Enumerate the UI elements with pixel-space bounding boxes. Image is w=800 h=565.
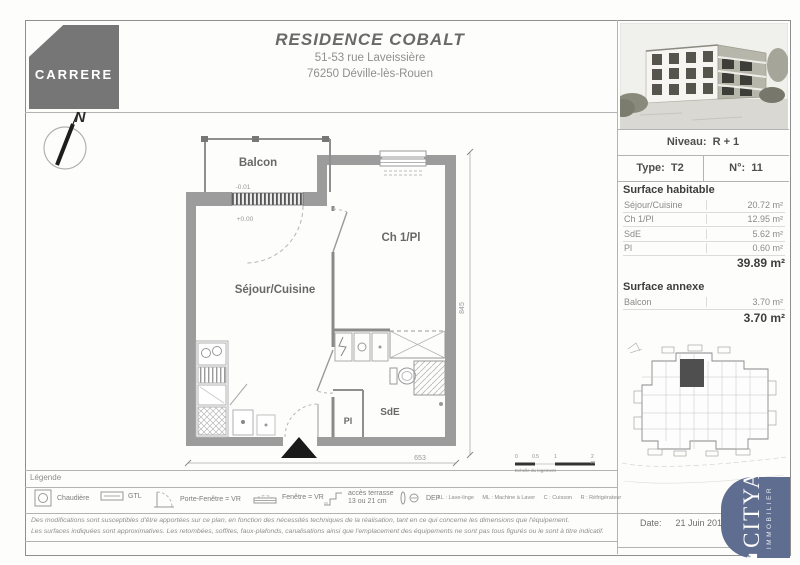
building-photo bbox=[620, 23, 788, 129]
svg-text:845: 845 bbox=[459, 302, 466, 314]
appliance-row bbox=[335, 333, 388, 361]
disclaimer-top-line bbox=[25, 513, 789, 514]
north-label: N bbox=[75, 109, 87, 126]
type-divider bbox=[617, 181, 789, 182]
level-sejour: +0.00 bbox=[237, 216, 254, 223]
surface-habitable-total: 39.89 m² bbox=[623, 256, 785, 270]
keyplan-building-outline bbox=[642, 353, 768, 449]
type-label: Type: bbox=[636, 162, 665, 174]
numero-cell: N°: 11 bbox=[703, 155, 789, 181]
table-row: Pl 0.60 m² bbox=[623, 242, 785, 257]
surface-habitable-table: Séjour/Cuisine 20.72 m² Ch 1/Pl 12.95 m²… bbox=[623, 198, 785, 256]
disclaimer-line2: Les surfaces indiquées sont approximativ… bbox=[31, 527, 619, 538]
entrance-arrow-icon bbox=[281, 437, 317, 458]
keyplan-highlighted-unit bbox=[680, 359, 704, 387]
address-line2: 76250 Déville-lès-Rouen bbox=[230, 66, 510, 82]
floor-plan-sheet: CARRERE RESIDENCE COBALT 51-53 rue Lavei… bbox=[0, 0, 800, 565]
niveau-value: R + 1 bbox=[713, 136, 740, 148]
table-row: Ch 1/Pl 12.95 m² bbox=[623, 213, 785, 228]
disclaimer-line1: Des modifications sont susceptibles d'êt… bbox=[31, 516, 619, 527]
key-plan bbox=[618, 333, 790, 501]
legend-item-dep: DEP bbox=[398, 489, 440, 507]
niveau-label: Niveau: bbox=[667, 136, 707, 148]
kitchen-block bbox=[196, 341, 275, 437]
citya-brand-name: CITYA bbox=[739, 477, 765, 548]
pl-closet-walls bbox=[333, 390, 363, 437]
legend-item-fenetre: Fenêtre = VR bbox=[252, 489, 324, 505]
level-balcon: -0.01 bbox=[236, 184, 251, 191]
fenetre-icon bbox=[252, 489, 278, 505]
citya-building-icon bbox=[745, 552, 758, 558]
table-row: SdE 5.62 m² bbox=[623, 227, 785, 242]
legend-item-gtl: GTL bbox=[100, 489, 142, 503]
room-label-balcon: Balcon bbox=[239, 157, 277, 169]
numero-value: 11 bbox=[751, 162, 763, 174]
legend-item-porte-fenetre: Porte-Fenêtre = VR bbox=[152, 489, 241, 509]
shower-icon bbox=[414, 361, 445, 406]
carrere-logo-text: CARRERE bbox=[35, 67, 113, 82]
gtl-icon bbox=[100, 489, 124, 503]
north-compass-icon: N bbox=[44, 109, 87, 169]
legend-item-chaudiere: Chaudière bbox=[33, 489, 89, 507]
table-row: Balcon 3.70 m² bbox=[623, 295, 785, 310]
room-label-sde: SdE bbox=[380, 407, 400, 418]
legend-mid-line bbox=[25, 487, 617, 488]
surface-annexe-total: 3.70 m² bbox=[623, 311, 785, 325]
date-label: Date: bbox=[640, 518, 662, 528]
toilet-icon bbox=[390, 368, 416, 384]
scale-caption: Echelle du logement bbox=[515, 468, 599, 473]
svg-text:653: 653 bbox=[414, 455, 426, 462]
surface-annexe-table: Balcon 3.70 m² bbox=[623, 295, 785, 310]
type-value: T2 bbox=[671, 162, 684, 174]
dimension-height: 845 bbox=[459, 149, 473, 458]
chaudiere-icon bbox=[33, 489, 53, 507]
title-block: RESIDENCE COBALT 51-53 rue Laveissière 7… bbox=[230, 30, 510, 82]
citya-logo: CITYA IMMOBILIER bbox=[721, 477, 790, 558]
porte-fenetre-band bbox=[232, 193, 303, 205]
dimension-width: 653 bbox=[185, 455, 459, 466]
ch1-placard bbox=[390, 331, 445, 358]
disclaimer: Des modifications sont susceptibles d'êt… bbox=[31, 516, 619, 537]
disclaimer-bottom-line bbox=[25, 541, 617, 542]
room-label-ch1: Ch 1/Pl bbox=[382, 232, 421, 244]
table-row: Séjour/Cuisine 20.72 m² bbox=[623, 198, 785, 213]
address-line1: 51-53 rue Laveissière bbox=[230, 50, 510, 66]
ch1-window bbox=[380, 151, 426, 175]
porte-fenetre-icon bbox=[152, 489, 176, 509]
scale-bar: 0 0.5 1 2 m Echelle du logement bbox=[515, 454, 599, 473]
legend-item-acces-terrasse: accès terrasse 13 ou 21 cm bbox=[322, 489, 394, 507]
residence-title: RESIDENCE COBALT bbox=[230, 30, 510, 50]
surface-habitable-title: Surface habitable bbox=[623, 184, 783, 196]
dep-icon bbox=[398, 489, 422, 507]
main-floor-plan: N bbox=[25, 105, 600, 470]
surface-annexe-title: Surface annexe bbox=[623, 281, 783, 293]
room-label-sejour: Séjour/Cuisine bbox=[235, 284, 316, 296]
numero-label: N°: bbox=[729, 162, 745, 174]
keyplan-north-scribble bbox=[628, 343, 642, 353]
legend-title: Légende bbox=[30, 473, 61, 482]
room-label-pl: Pl bbox=[344, 416, 353, 426]
citya-brand-sub: IMMOBILIER bbox=[766, 486, 773, 549]
type-cell: Type: T2 bbox=[617, 155, 703, 181]
acces-terrasse-icon bbox=[322, 489, 344, 507]
niveau-row: Niveau: R + 1 bbox=[617, 129, 789, 155]
legend-abbreviations: LL : Lave-linge ML : Machine à Laver C :… bbox=[438, 495, 628, 501]
scale-bar-segments bbox=[515, 461, 599, 466]
date-value: 21 Juin 201 bbox=[676, 518, 723, 528]
